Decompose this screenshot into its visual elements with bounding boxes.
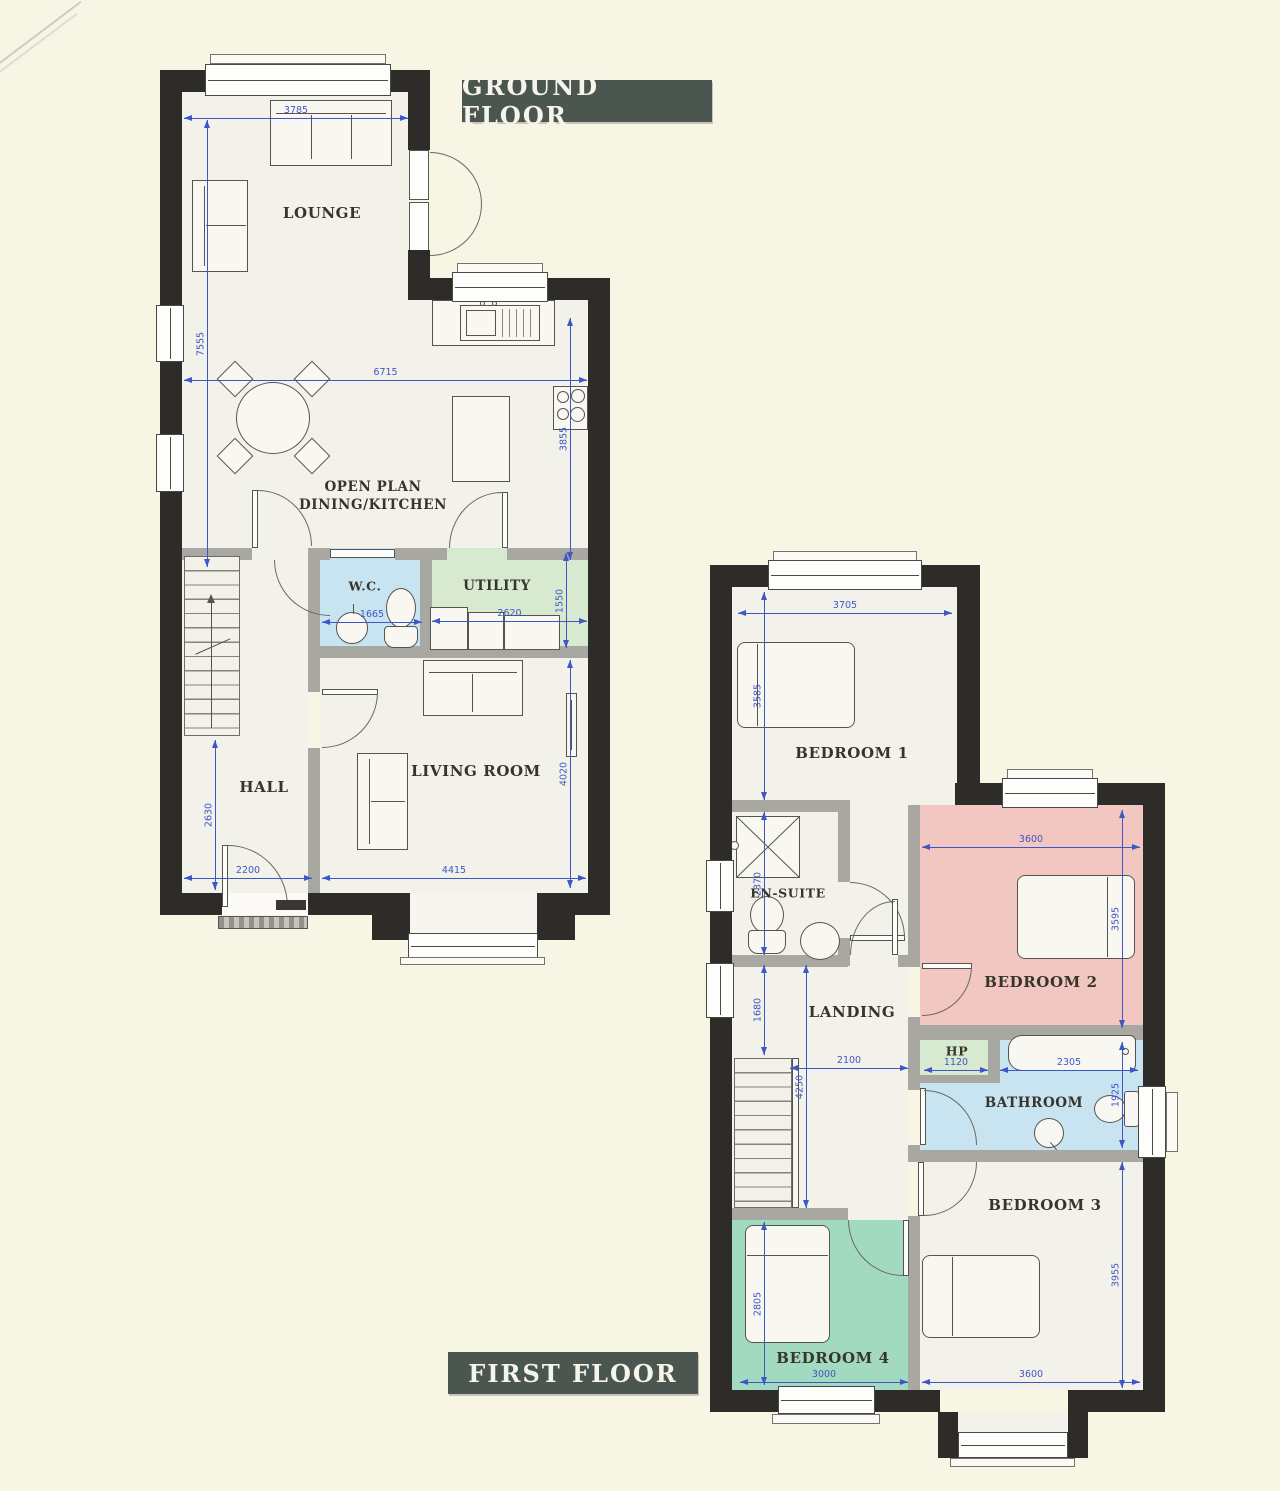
stairs-direction-arrow (207, 594, 215, 603)
sofa-divider (311, 115, 312, 159)
french-door-arc (430, 152, 482, 204)
landing-window (706, 963, 734, 1018)
sofa-divider (371, 801, 405, 802)
room-label-bedroom3: BEDROOM 3 (988, 1196, 1101, 1214)
hob-burner (557, 408, 569, 420)
wall (908, 1150, 1143, 1162)
room-fill-bay (958, 1412, 1068, 1434)
room-label-hall: HALL (239, 778, 288, 796)
bed (922, 1255, 1040, 1338)
dim-bedroom3-width: 3600 (922, 1382, 1140, 1383)
hob-burner (557, 391, 569, 403)
wall (160, 893, 222, 915)
dim-landing-width: 2100 (790, 1068, 908, 1069)
wall (732, 800, 850, 812)
room-label-living: LIVING ROOM (411, 762, 541, 780)
dim-hall-width: 2200 (184, 878, 312, 879)
door-threshold (276, 900, 306, 910)
dim-bedroom4-height: 2805 (764, 1222, 765, 1385)
dim-bathroom-height: 1925 (1122, 1042, 1123, 1148)
window-sill (210, 54, 386, 64)
sofa-divider (351, 115, 352, 159)
window-sill (950, 1458, 1075, 1467)
dim-bedroom3-height: 3955 (1122, 1162, 1123, 1388)
room-label-dining-line2: DINING/KITCHEN (299, 497, 447, 513)
kitchen-window (452, 272, 548, 302)
bay-wall (938, 1412, 958, 1458)
window-sill (1166, 1092, 1178, 1152)
dim-landing-upper-height: 1680 (764, 965, 765, 1055)
french-door-leaf (409, 202, 429, 252)
dining-table (236, 382, 310, 454)
french-door-leaf (409, 150, 429, 200)
bedroom4-window (778, 1386, 875, 1414)
side-window (156, 305, 184, 362)
room-label-bedroom2: BEDROOM 2 (984, 973, 1097, 991)
wall (160, 70, 182, 915)
french-door-arc (430, 204, 482, 256)
utility-door (502, 492, 508, 548)
dim-lounge-height: 7555 (207, 120, 208, 567)
sink-bowl (466, 310, 496, 336)
bed (745, 1225, 830, 1343)
dim-landing-height: 4250 (806, 965, 807, 1208)
staircase (734, 1058, 792, 1208)
sofa-divider (472, 674, 473, 712)
bay-window (408, 933, 538, 959)
washing-machine (430, 607, 468, 650)
ground-floor-badge: GROUND FLOOR (462, 80, 712, 122)
wall (908, 805, 920, 965)
room-label-landing: LANDING (809, 1003, 896, 1021)
room-label-bedroom1: BEDROOM 1 (795, 744, 908, 762)
sofa-divider (206, 225, 246, 226)
bathroom-sink (1034, 1118, 1064, 1148)
wall (507, 548, 588, 560)
lounge-window (205, 64, 391, 96)
dim-living-height: 4020 (570, 660, 571, 888)
ensuite-window (706, 860, 734, 912)
bay-wall (1068, 1412, 1088, 1458)
toilet-base (384, 626, 418, 648)
ensuite-sink (800, 922, 840, 960)
room-label-ensuite: EN-SUITE (750, 886, 826, 901)
bedroom3-bay-window (958, 1432, 1068, 1458)
shower-cross (736, 816, 800, 878)
wall (575, 893, 610, 915)
wall (732, 1208, 848, 1220)
toilet-bowl (750, 896, 784, 934)
wall (957, 565, 980, 805)
bay-wall (372, 893, 410, 940)
dim-utility-height: 1550 (566, 553, 567, 648)
dim-lounge-width: 3785 (184, 118, 408, 119)
bed-pillow-line (952, 1257, 953, 1336)
toilet-base (748, 930, 786, 954)
sink-drainer (502, 309, 536, 337)
room-label-bathroom: BATHROOM (985, 1095, 1083, 1111)
dim-utility-width: 2620 (432, 621, 587, 622)
dim-ensuite-height: 2370 (764, 812, 765, 955)
wall (308, 893, 372, 915)
dim-living-width: 4415 (322, 878, 586, 879)
bathroom-window (1138, 1086, 1166, 1158)
room-label-dining-line1: OPEN PLAN (324, 479, 421, 495)
room-label-utility: UTILITY (463, 578, 531, 594)
dim-bedroom2-width: 3600 (922, 847, 1140, 848)
wall (908, 1216, 920, 1390)
wall (838, 800, 850, 882)
wall (1068, 1390, 1165, 1412)
bay-wall (537, 893, 575, 940)
wc-door (330, 549, 395, 558)
tv-unit-line (571, 700, 572, 750)
kitchen-island (452, 396, 510, 482)
bed-pillow-line (1107, 877, 1108, 957)
porch-canopy (218, 916, 308, 929)
stairs-direction-line (211, 600, 212, 728)
first-floor-badge: FIRST FLOOR (448, 1352, 698, 1394)
window-sill (772, 1414, 880, 1424)
room-label-bedroom4: BEDROOM 4 (776, 1349, 889, 1367)
dim-bedroom1-width: 3705 (738, 613, 952, 614)
dim-kitchen-height: 3855 (570, 318, 571, 560)
side-window (156, 434, 184, 492)
scan-fold-line (0, 13, 77, 85)
room-label-lounge: LOUNGE (283, 204, 361, 222)
wall (920, 1075, 1000, 1083)
bedroom1-window (768, 560, 922, 590)
wall (588, 278, 610, 915)
dim-hp-width: 1120 (924, 1070, 988, 1071)
bedroom2-window (1002, 778, 1098, 808)
hob-burner (570, 407, 585, 422)
dim-wc-width: 1665 (322, 622, 422, 623)
hob-burner (571, 389, 585, 403)
bed-pillow-line (747, 1255, 828, 1256)
dim-dining-width: 6715 (184, 380, 587, 381)
dim-bedroom1-height: 3585 (764, 592, 765, 800)
toilet-cistern (1124, 1091, 1139, 1127)
wall (308, 748, 320, 893)
dim-bedroom2-height: 3595 (1122, 810, 1123, 1028)
room-label-hp: HP (946, 1044, 968, 1059)
room-label-wc: W.C. (349, 579, 382, 594)
bedroom4-door (903, 1220, 909, 1276)
wall (408, 70, 430, 150)
dim-hall-height: 2630 (215, 740, 216, 890)
scan-fold-line (0, 1, 81, 67)
room-fill-bay (410, 893, 537, 935)
dim-bath-width: 2305 (1000, 1070, 1138, 1071)
window-sill (400, 957, 545, 965)
wc-sink-tap (353, 604, 354, 614)
